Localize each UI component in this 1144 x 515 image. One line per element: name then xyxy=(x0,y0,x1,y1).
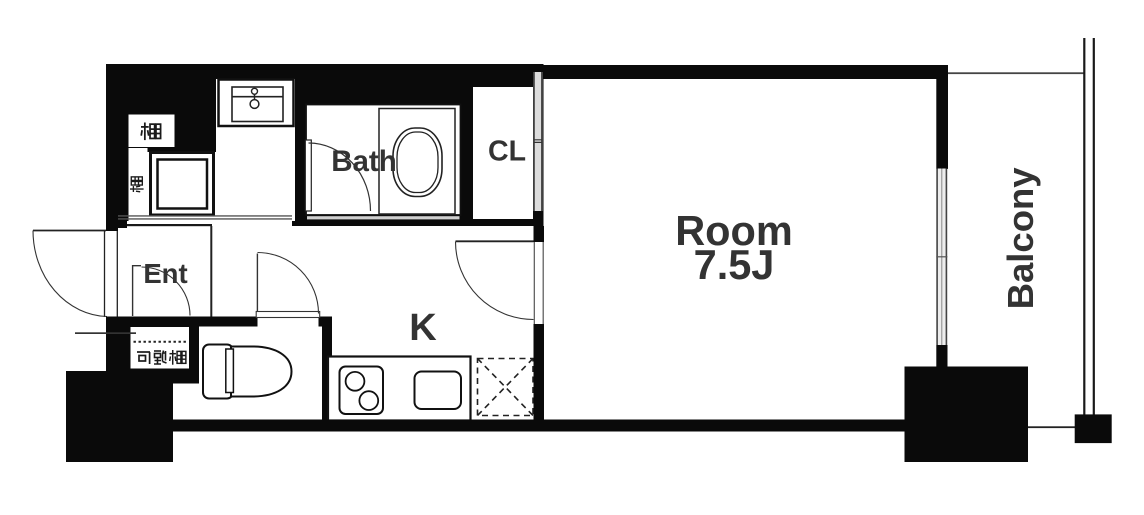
svg-text:K: K xyxy=(409,307,437,349)
svg-text:CL: CL xyxy=(488,136,526,168)
svg-text:7.5J: 7.5J xyxy=(694,241,775,288)
svg-text:Balcony: Balcony xyxy=(1000,167,1041,310)
svg-text:Bath: Bath xyxy=(331,145,397,178)
